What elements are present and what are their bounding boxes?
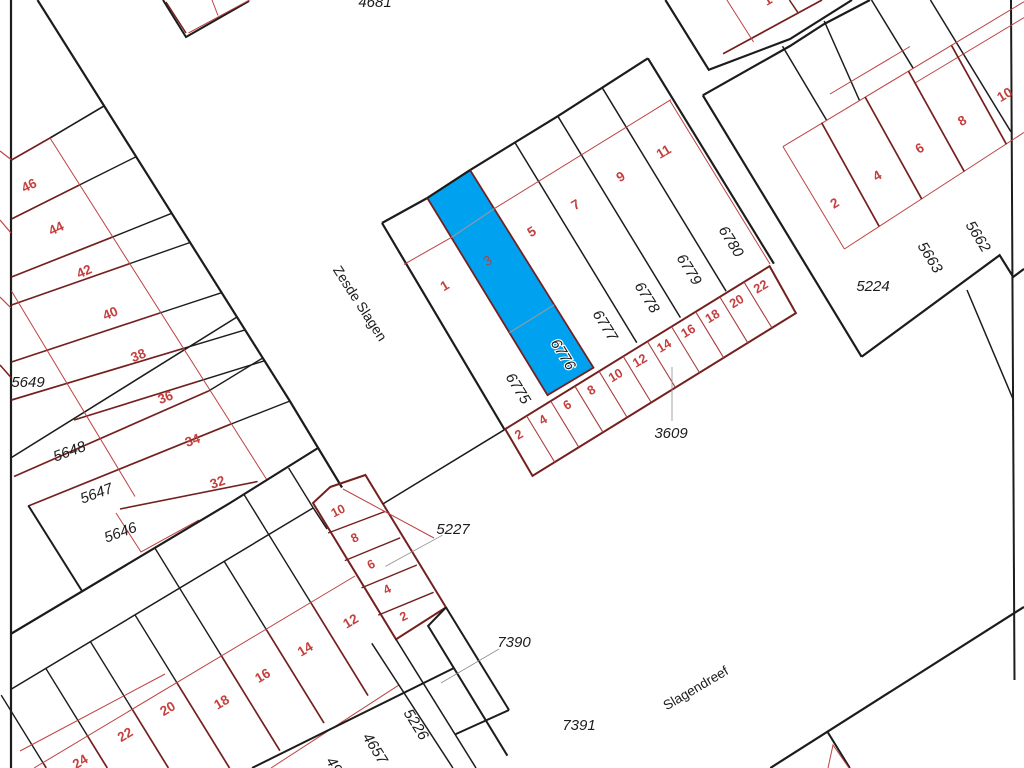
svg-text:5224: 5224 bbox=[856, 278, 889, 295]
svg-text:5649: 5649 bbox=[11, 374, 45, 391]
svg-text:3609: 3609 bbox=[654, 425, 688, 442]
svg-text:4681: 4681 bbox=[358, 0, 391, 11]
svg-text:7390: 7390 bbox=[497, 634, 531, 651]
svg-text:7391: 7391 bbox=[562, 717, 595, 734]
